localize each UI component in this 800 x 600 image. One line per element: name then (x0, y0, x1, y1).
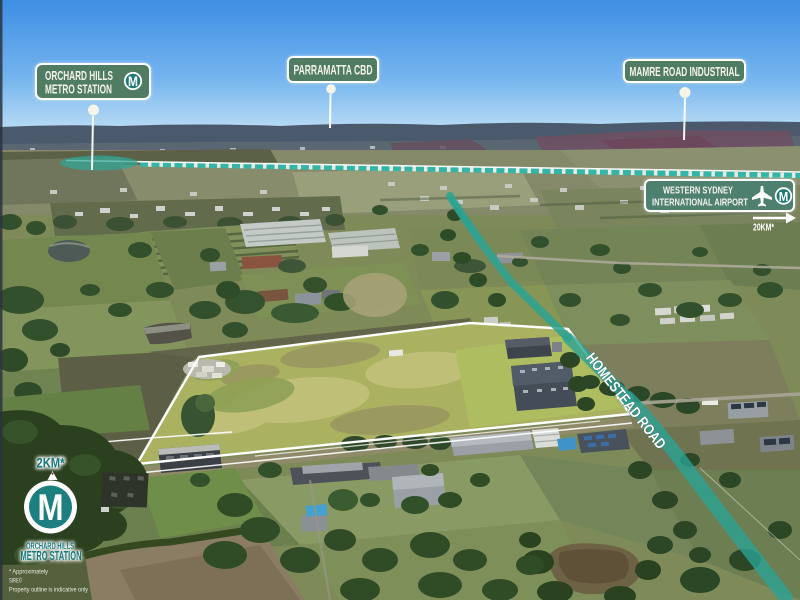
svg-text:METRO STATION: METRO STATION (21, 548, 82, 563)
svg-text:2KM*: 2KM* (37, 455, 65, 471)
svg-text:SIRE©: SIRE© (9, 578, 22, 585)
svg-text:M: M (779, 189, 789, 204)
svg-text:WESTERN SYDNEY: WESTERN SYDNEY (663, 185, 733, 197)
svg-text:20KM*: 20KM* (753, 222, 775, 234)
svg-text:M: M (128, 74, 138, 89)
svg-text:METRO STATION: METRO STATION (45, 82, 112, 97)
svg-text:INTERNATIONAL AIRPORT: INTERNATIONAL AIRPORT (652, 197, 748, 209)
svg-text:MAMRE ROAD INDUSTRIAL: MAMRE ROAD INDUSTRIAL (630, 64, 740, 79)
svg-text:Property outline is indicative: Property outline is indicative only (9, 587, 89, 594)
svg-text:M: M (38, 487, 64, 528)
svg-text:* Approximately: * Approximately (9, 569, 49, 576)
svg-text:PARRAMATTA CBD: PARRAMATTA CBD (294, 62, 373, 78)
